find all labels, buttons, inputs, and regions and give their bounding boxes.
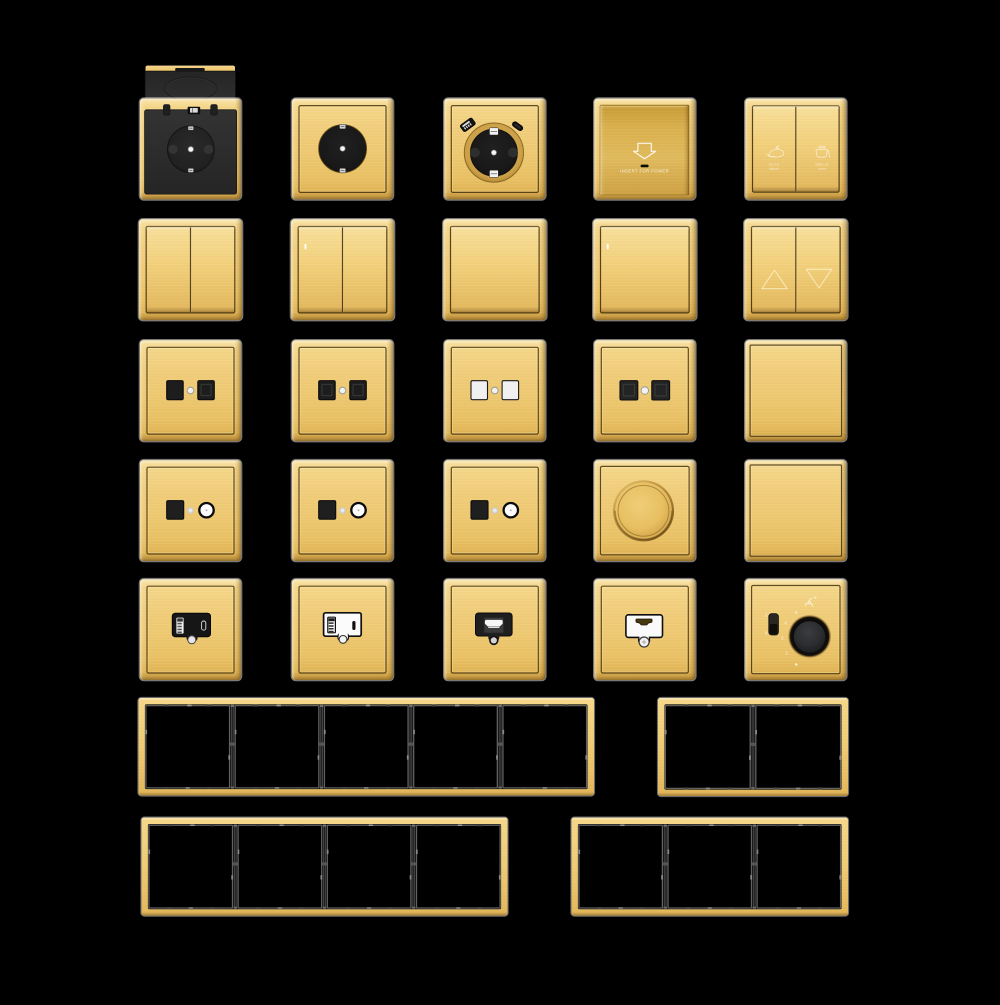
svg-text:Make up: Make up	[815, 163, 828, 167]
svg-text:Do not: Do not	[769, 163, 779, 167]
svg-text:disturb: disturb	[769, 167, 779, 171]
svg-text:room: room	[818, 167, 826, 171]
svg-text:INSERT FOR POWER: INSERT FOR POWER	[620, 169, 669, 174]
